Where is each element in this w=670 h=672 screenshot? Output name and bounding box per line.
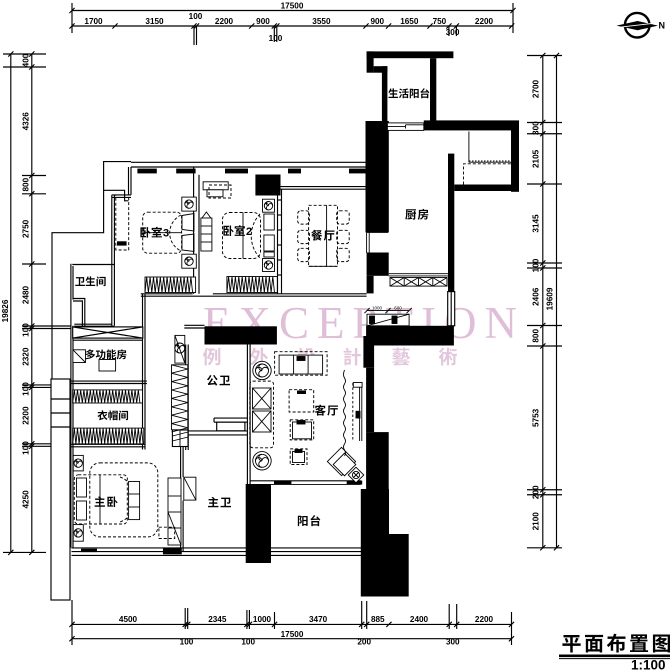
svg-text:1650: 1650 xyxy=(400,17,419,26)
svg-text:300: 300 xyxy=(446,28,460,37)
svg-text:5753: 5753 xyxy=(532,408,541,427)
svg-text:100: 100 xyxy=(189,12,203,21)
svg-text:2750: 2750 xyxy=(22,219,31,238)
svg-text:3550: 3550 xyxy=(312,17,331,26)
svg-text:4500: 4500 xyxy=(119,615,138,624)
svg-text:2700: 2700 xyxy=(532,79,541,98)
svg-text:2200: 2200 xyxy=(22,406,31,425)
svg-text:1700: 1700 xyxy=(84,17,103,26)
svg-text:100: 100 xyxy=(22,382,31,396)
svg-text:1000: 1000 xyxy=(372,306,383,311)
svg-text:3: 3 xyxy=(163,228,169,240)
svg-text:4250: 4250 xyxy=(22,490,31,509)
svg-text:2100: 2100 xyxy=(532,512,541,531)
svg-text:750: 750 xyxy=(433,17,447,26)
svg-text:2400: 2400 xyxy=(410,615,429,624)
svg-text:2345: 2345 xyxy=(208,615,227,624)
svg-text:300: 300 xyxy=(532,121,541,135)
svg-text:2406: 2406 xyxy=(532,287,541,306)
svg-text:300: 300 xyxy=(446,638,460,647)
svg-text:17500: 17500 xyxy=(281,630,304,639)
svg-text:2480: 2480 xyxy=(22,285,31,304)
svg-text:2320: 2320 xyxy=(22,347,31,366)
svg-text:200: 200 xyxy=(357,638,371,647)
svg-text:100: 100 xyxy=(241,638,255,647)
svg-text:100: 100 xyxy=(180,638,194,647)
svg-text:19609: 19609 xyxy=(546,287,555,310)
svg-text:400: 400 xyxy=(22,53,31,67)
svg-text:19826: 19826 xyxy=(1,299,10,322)
svg-text:900: 900 xyxy=(370,17,384,26)
svg-text:100: 100 xyxy=(269,34,283,43)
svg-text:2200: 2200 xyxy=(215,17,234,26)
svg-text:800: 800 xyxy=(532,329,541,343)
svg-text:3470: 3470 xyxy=(309,615,328,624)
svg-text:2200: 2200 xyxy=(475,615,494,624)
svg-text:1:100: 1:100 xyxy=(631,658,666,672)
svg-text:200: 200 xyxy=(532,485,541,499)
svg-text:800: 800 xyxy=(22,177,31,191)
svg-text:17500: 17500 xyxy=(281,2,304,11)
svg-text:3150: 3150 xyxy=(145,17,164,26)
svg-text:100: 100 xyxy=(22,441,31,455)
svg-text:600: 600 xyxy=(394,306,402,311)
svg-text:2105: 2105 xyxy=(532,149,541,168)
svg-text:N: N xyxy=(659,21,666,31)
svg-text:2200: 2200 xyxy=(475,17,494,26)
svg-text:885: 885 xyxy=(371,615,385,624)
svg-text:900: 900 xyxy=(256,17,270,26)
svg-text:1000: 1000 xyxy=(253,615,272,624)
svg-text:100: 100 xyxy=(532,258,541,272)
svg-text:3145: 3145 xyxy=(532,214,541,233)
svg-text:4326: 4326 xyxy=(22,112,31,131)
svg-text:100: 100 xyxy=(22,323,31,337)
